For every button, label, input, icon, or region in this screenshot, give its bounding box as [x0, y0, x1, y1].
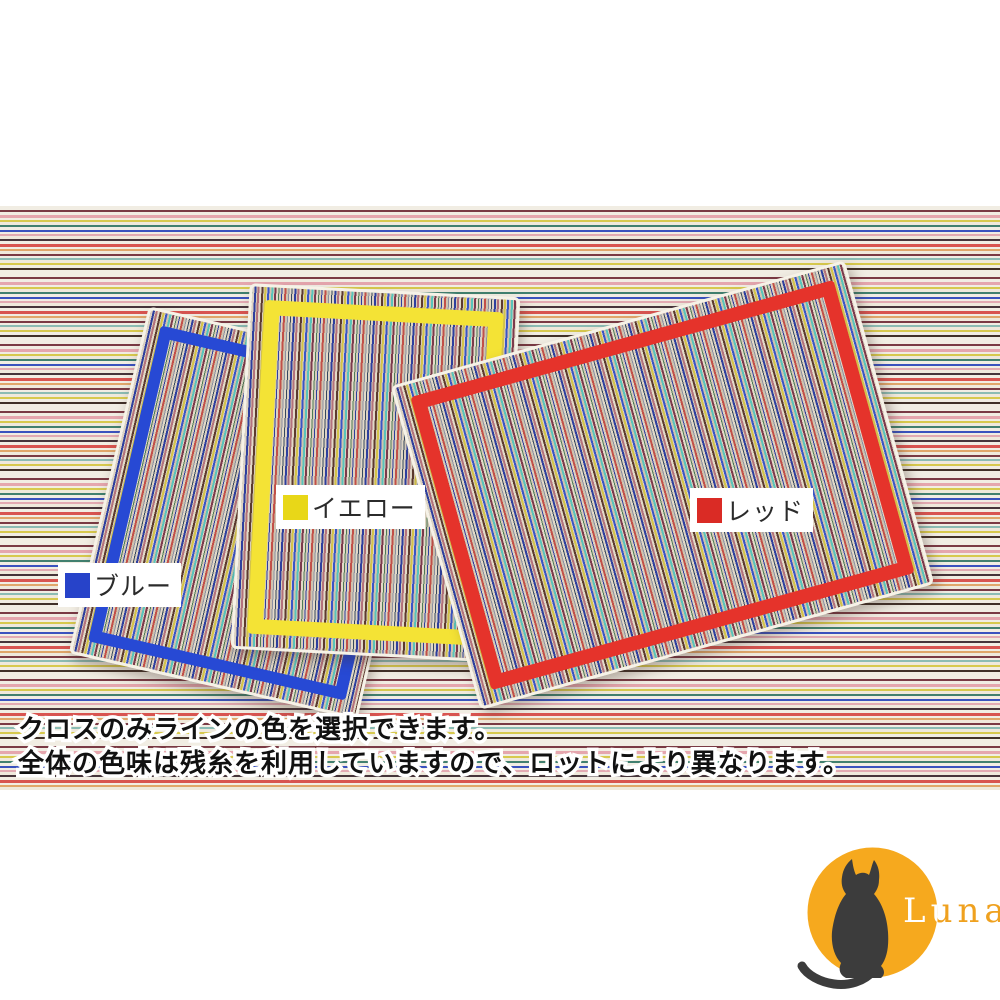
product-image: ブルー イエロー レッド クロスのみラインの色を選択できます。 全体の色味は残糸…: [0, 0, 1000, 1000]
brand-name-text: Luna: [903, 891, 1000, 931]
label-blue: ブルー: [58, 563, 181, 607]
yellow-swatch-icon: [283, 495, 308, 520]
label-yellow: イエロー: [276, 485, 425, 529]
label-yellow-text: イエロー: [312, 489, 416, 525]
caption: クロスのみラインの色を選択できます。 全体の色味は残糸を利用していますので、ロッ…: [18, 712, 850, 780]
label-red: レッド: [690, 488, 813, 532]
label-red-text: レッド: [726, 492, 804, 528]
caption-line-1: クロスのみラインの色を選択できます。: [18, 712, 850, 746]
label-blue-text: ブルー: [94, 567, 172, 603]
blue-swatch-icon: [65, 573, 90, 598]
product-photo-background: ブルー イエロー レッド クロスのみラインの色を選択できます。 全体の色味は残糸…: [0, 206, 1000, 790]
luna-logo: Luna: [790, 844, 1000, 994]
red-swatch-icon: [697, 498, 722, 523]
caption-line-2: 全体の色味は残糸を利用していますので、ロットにより異なります。: [18, 746, 850, 780]
